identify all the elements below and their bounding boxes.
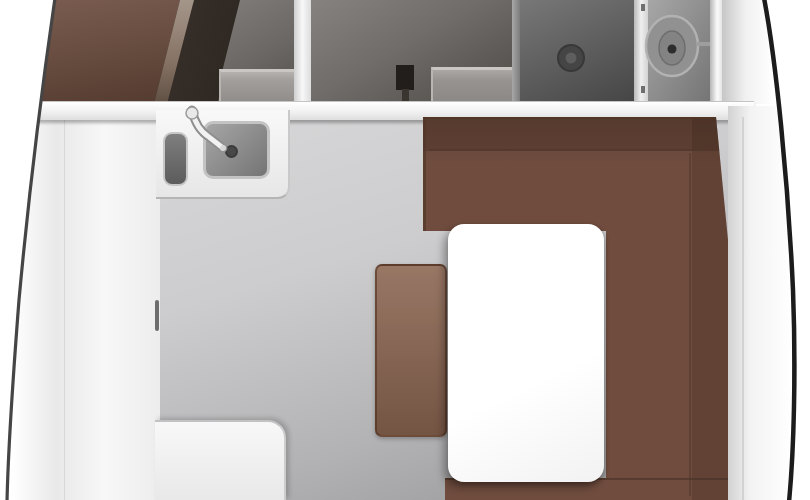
head-door-hinge-top	[641, 4, 645, 11]
starboard-partition-wall	[710, 0, 722, 104]
shower-tray	[512, 0, 636, 104]
compartment-fixture-box	[396, 65, 414, 90]
aft-galley-counter	[155, 420, 286, 500]
sofa-edge-top	[423, 117, 728, 119]
port-sidewall-cabinet	[12, 108, 160, 500]
head-door-hinge-bottom	[641, 86, 645, 93]
sofa-edge-left	[423, 117, 426, 231]
starboard-hull-band	[728, 106, 792, 500]
floor-plan-canvas	[0, 0, 810, 500]
galley-small-sink	[163, 132, 188, 186]
companionway-step	[219, 69, 298, 104]
sofa-cushion-seam-horizontal	[429, 149, 705, 151]
ottoman-seat	[375, 264, 447, 437]
shower-tray-edge	[512, 0, 520, 104]
starboard-hull-inner-line	[742, 117, 744, 500]
sink-drain	[225, 145, 238, 158]
forward-cabin-door	[36, 0, 196, 104]
toilet-compartment	[648, 0, 710, 104]
forward-partition-wall	[294, 0, 311, 104]
starboard-hull-band-forward	[722, 0, 774, 104]
dinette-table	[448, 224, 604, 482]
port-cabinet-edge-line	[64, 108, 65, 500]
sofa-backrest-top	[423, 117, 728, 151]
locker-handle	[155, 300, 159, 331]
storage-shelf	[431, 67, 513, 104]
sofa-cushion-seam-vertical	[689, 153, 691, 496]
